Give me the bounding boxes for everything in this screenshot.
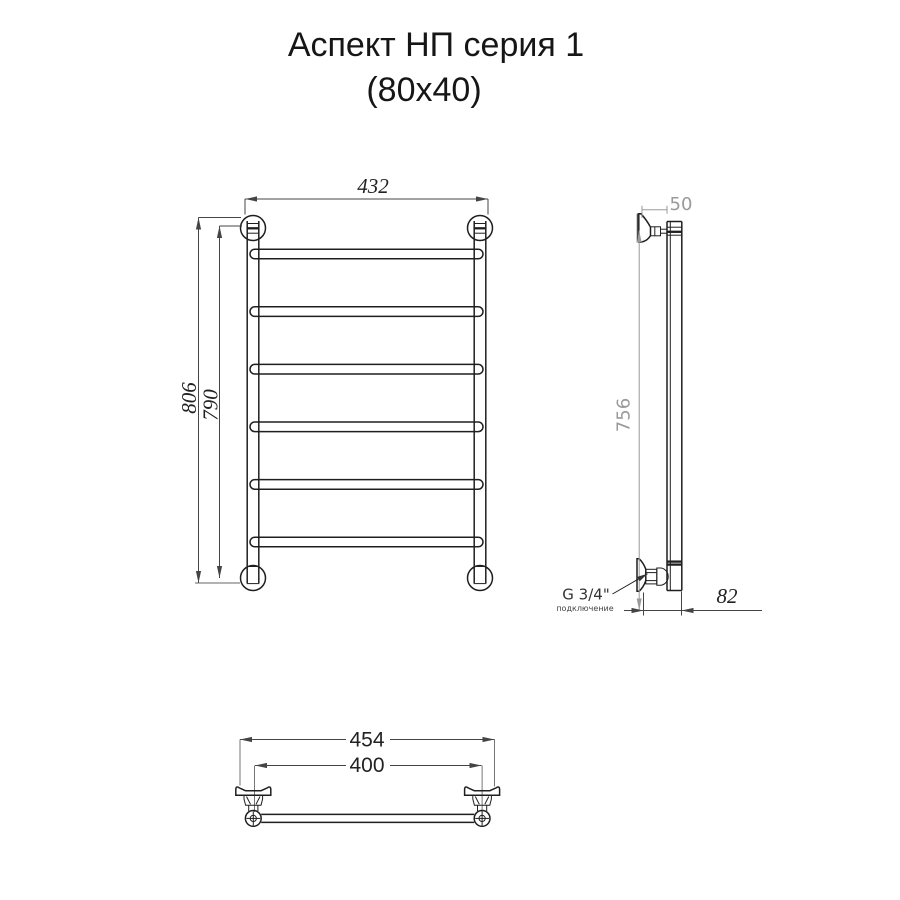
front-bracket-bottom-right	[468, 566, 493, 591]
drawing-page: Аспект НП серия 1 (80x40)	[0, 0, 900, 900]
front-rung	[250, 480, 483, 490]
plan-left-bracket	[236, 787, 271, 826]
front-dim-height-inner: 790	[199, 226, 243, 578]
front-rung	[250, 307, 483, 317]
drawing-title: Аспект НП серия 1	[288, 26, 584, 64]
side-dim-bottom-depth: 82	[624, 584, 762, 616]
front-view: 432 806 790	[177, 174, 493, 591]
side-dim-bracket-depth: 50	[642, 194, 692, 218]
side-view: 50 756 82 G 3/4" подключение	[556, 194, 762, 616]
technical-drawing: Аспект НП серия 1 (80x40)	[0, 0, 900, 900]
front-rung	[250, 422, 483, 432]
front-bracket-bottom-left	[241, 566, 266, 591]
side-connection-callout: G 3/4" подключение	[556, 574, 647, 613]
plan-dim-width-inner: 400	[255, 754, 483, 812]
front-dim-height-outer-label: 806	[177, 382, 201, 414]
side-dim-bottom-depth-label: 82	[717, 584, 739, 608]
plan-view: 454 400	[236, 729, 500, 827]
side-connection-label: G 3/4"	[562, 586, 609, 604]
front-dim-height-inner-label: 790	[199, 389, 223, 421]
front-bracket-collars	[247, 224, 487, 584]
front-rung	[250, 249, 483, 259]
plan-dim-width-inner-label: 400	[349, 754, 384, 777]
side-tube	[667, 222, 682, 591]
side-dim-bracket-depth-label: 50	[670, 194, 693, 215]
side-dim-height: 756	[614, 231, 642, 611]
drawing-subtitle: (80x40)	[366, 71, 481, 109]
front-dim-width: 432	[245, 174, 488, 215]
front-dim-width-label: 432	[357, 174, 389, 198]
plan-dim-width-outer-label: 454	[349, 729, 384, 752]
side-valve-nut	[646, 569, 657, 584]
front-rung	[250, 364, 483, 374]
front-rungs	[250, 249, 483, 547]
side-dim-height-label: 756	[614, 398, 635, 432]
side-connection-note: подключение	[556, 604, 613, 613]
side-top-nut	[651, 227, 661, 236]
front-rung	[250, 537, 483, 547]
